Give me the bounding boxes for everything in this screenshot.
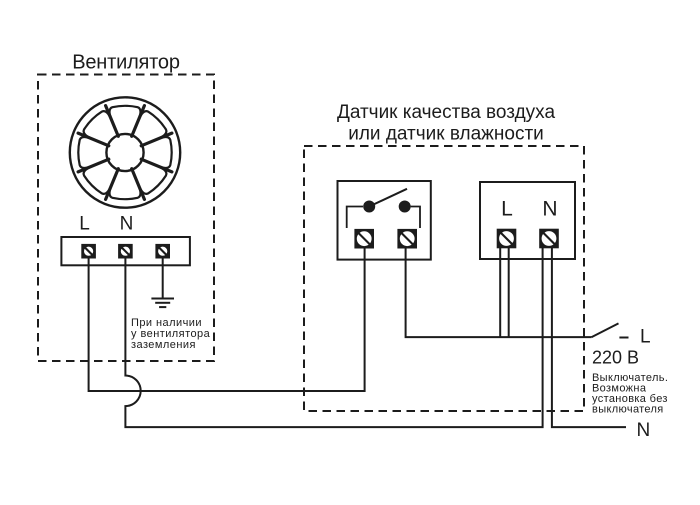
- svg-text:L: L: [640, 327, 651, 348]
- svg-text:N: N: [637, 420, 651, 441]
- svg-text:Датчик качества воздухаили дат: Датчик качества воздухаили датчик влажно…: [337, 102, 555, 145]
- svg-text:Вентилятор: Вентилятор: [72, 52, 180, 74]
- svg-text:L: L: [79, 214, 90, 235]
- svg-text:N: N: [542, 198, 557, 221]
- svg-text:L: L: [501, 198, 513, 221]
- svg-text:220 В: 220 В: [592, 348, 639, 368]
- svg-text:N: N: [120, 214, 134, 235]
- svg-text:Выключатель.Возможнаустановка: Выключатель.Возможнаустановка безвыключа…: [592, 372, 668, 416]
